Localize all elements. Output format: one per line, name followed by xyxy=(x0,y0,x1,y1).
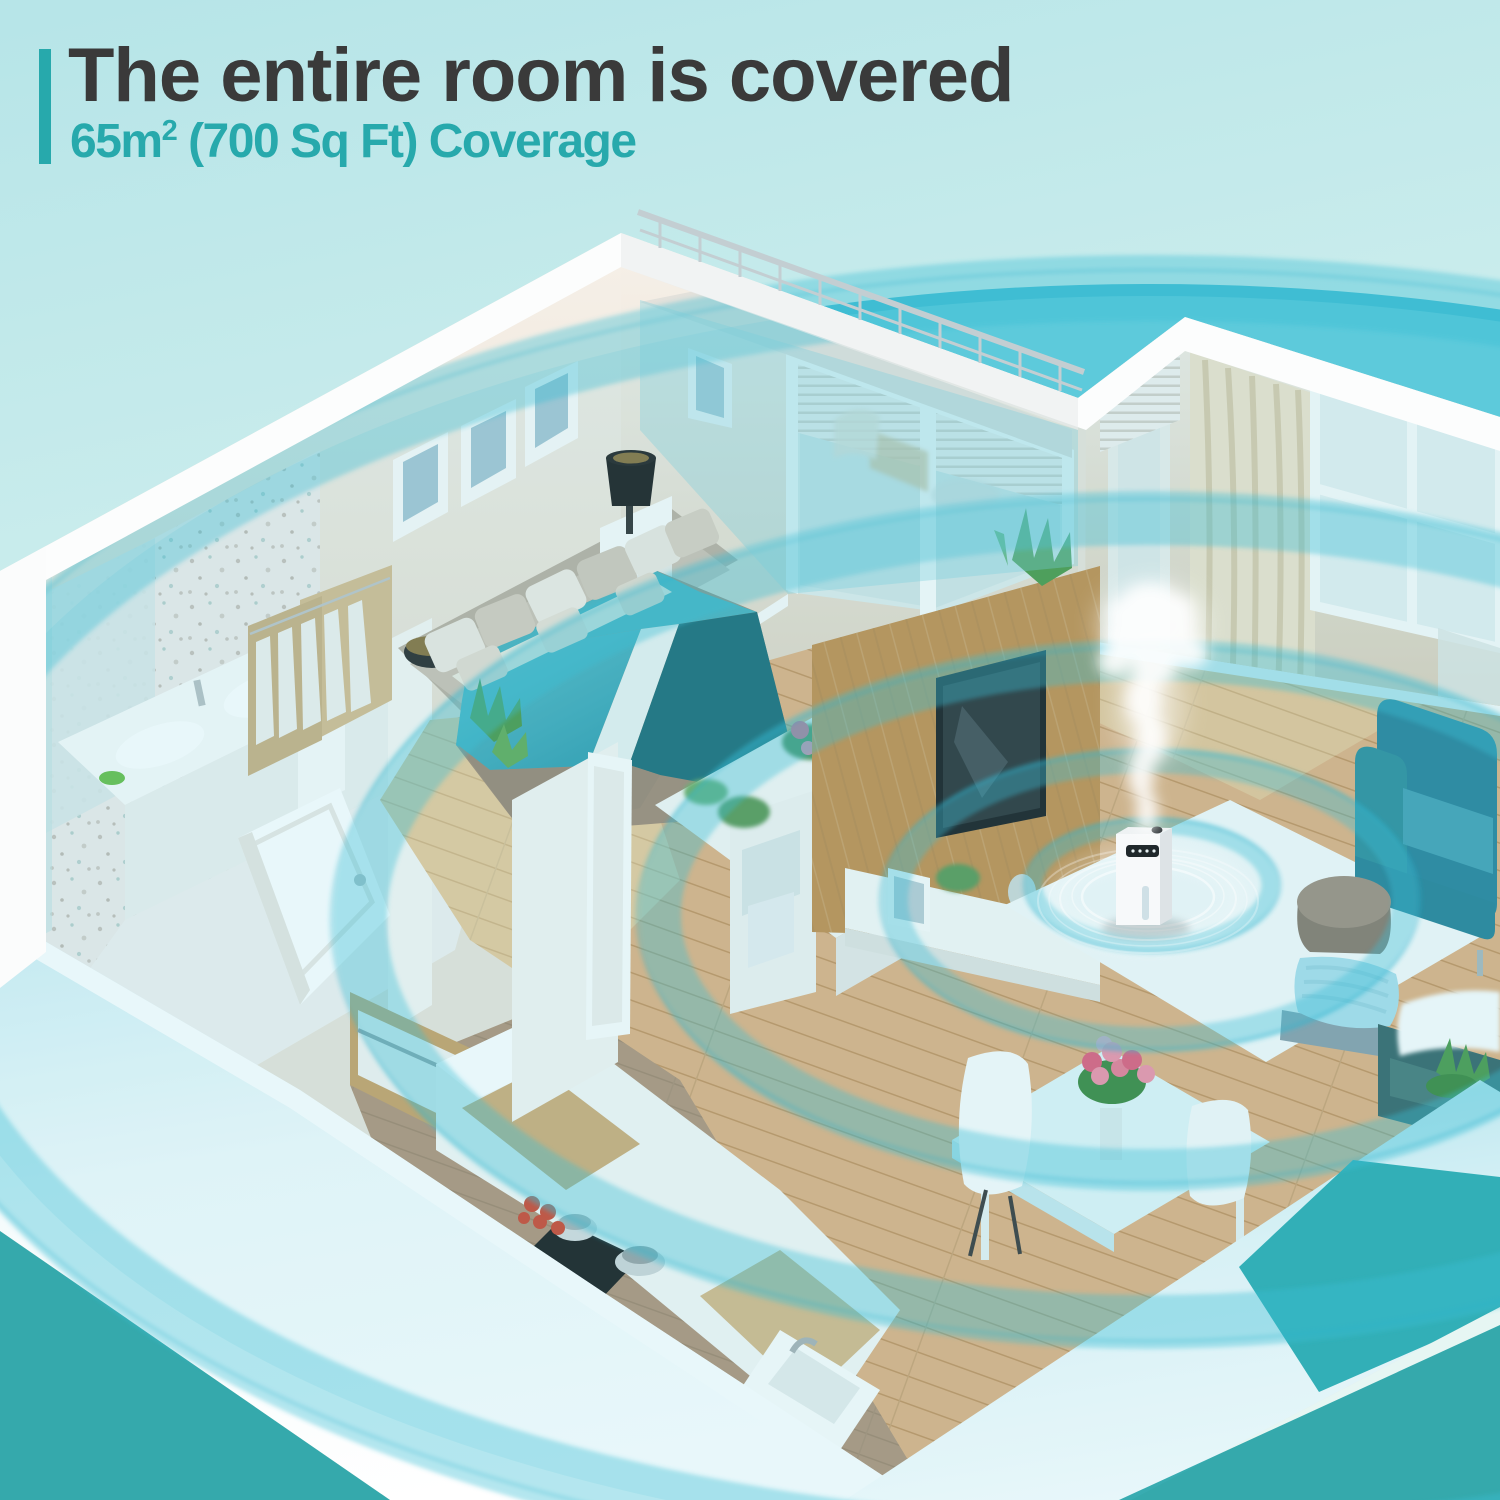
svg-text:The entire room is covered: The entire room is covered xyxy=(68,33,1013,118)
svg-text:65m2 (700 Sq Ft) Coverage: 65m2 (700 Sq Ft) Coverage xyxy=(70,115,636,168)
